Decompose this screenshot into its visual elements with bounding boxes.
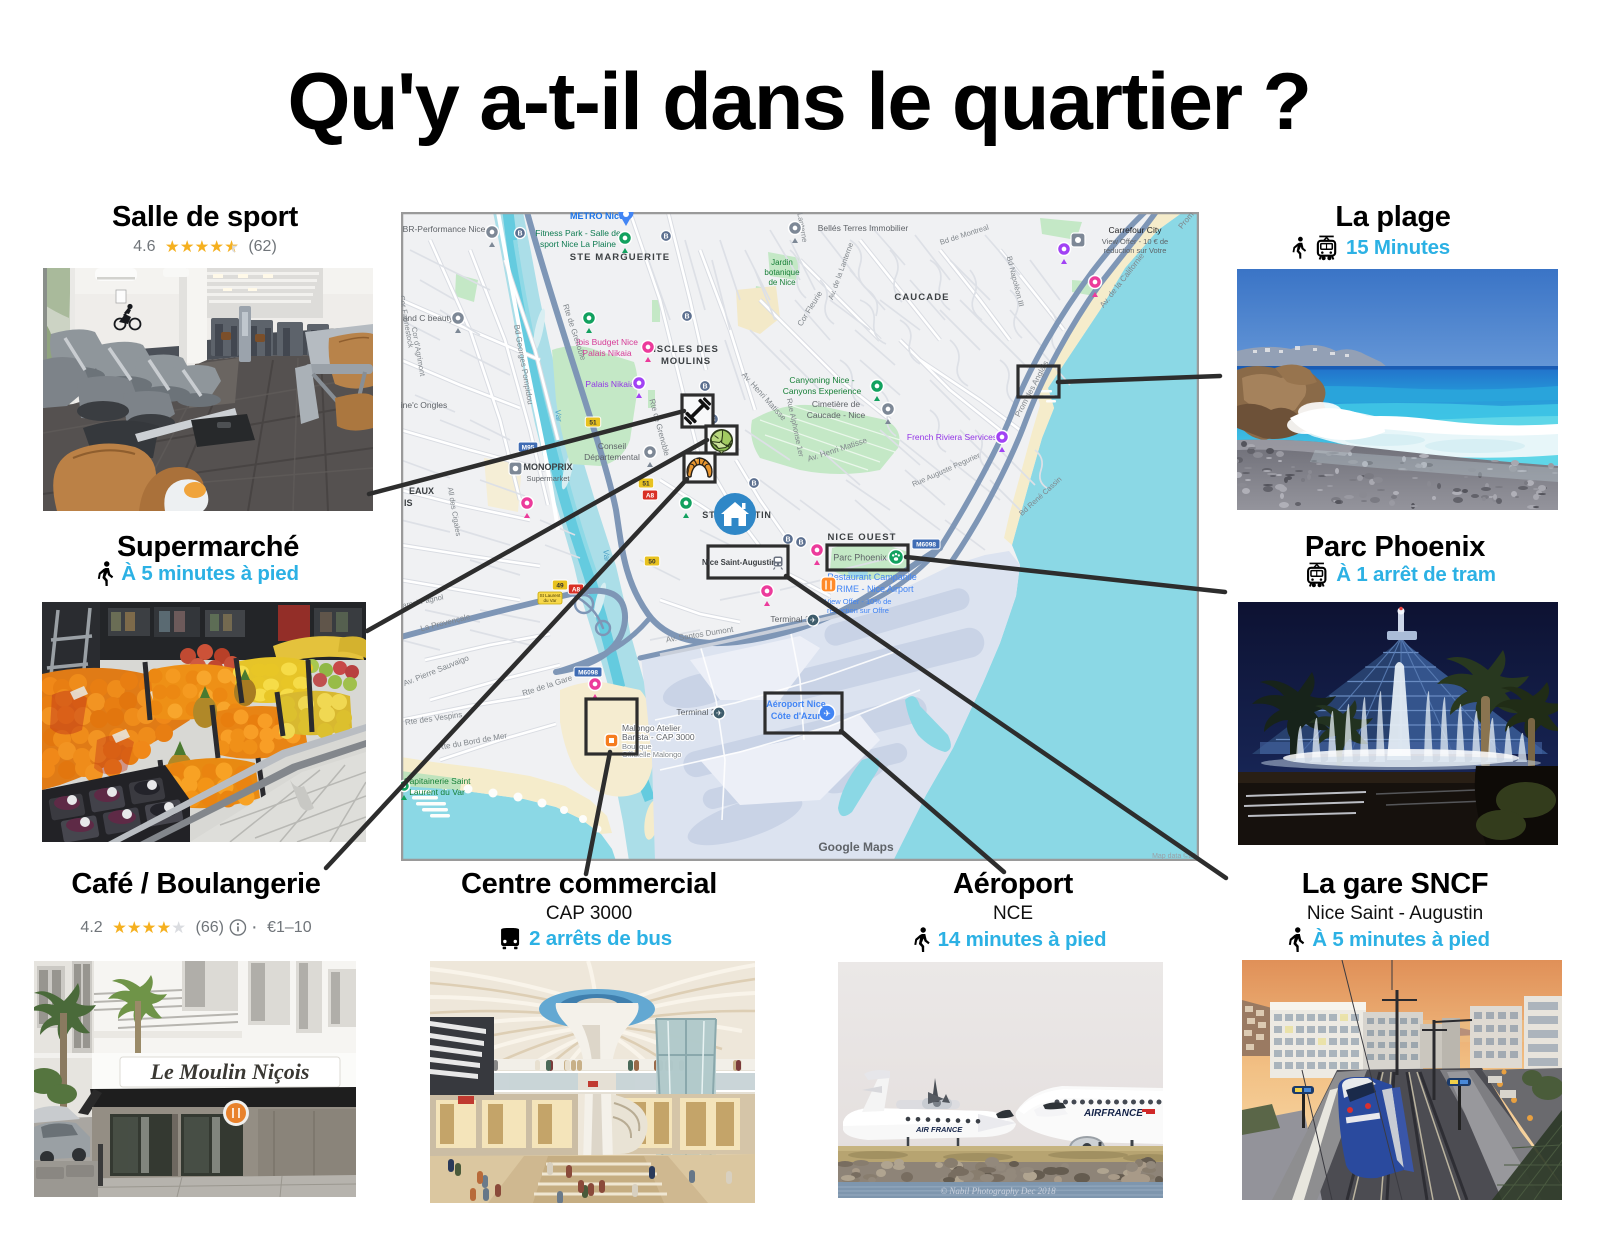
svg-text:M95: M95 <box>522 445 535 452</box>
svg-text:Carrefour City: Carrefour City <box>1109 225 1163 235</box>
svg-text:Bellés Terres Immobilier: Bellés Terres Immobilier <box>818 223 909 233</box>
svg-text:Laurent du Var: Laurent du Var <box>409 787 465 797</box>
svg-text:Fitness Park - Salle de: Fitness Park - Salle de <box>535 228 621 238</box>
svg-text:réduction sur Offre: réduction sur Offre <box>827 606 889 615</box>
svg-text:AIR FRANCE: AIR FRANCE <box>915 1125 963 1134</box>
svg-text:BR-Performance Nice: BR-Performance Nice <box>403 224 486 234</box>
svg-text:Google Maps: Google Maps <box>818 840 894 854</box>
svg-text:Capitainerie Saint: Capitainerie Saint <box>403 776 471 786</box>
svg-text:B: B <box>798 540 803 547</box>
svg-text:B: B <box>785 537 790 544</box>
svg-text:STE MARGUERITE: STE MARGUERITE <box>570 252 670 263</box>
svg-text:M6098: M6098 <box>916 542 936 549</box>
svg-text:Palais Nikaia: Palais Nikaia <box>585 379 634 389</box>
svg-text:Aéroport Nice: Aéroport Nice <box>766 699 826 709</box>
svg-text:Caucade - Nice: Caucade - Nice <box>807 410 866 420</box>
svg-text:IS: IS <box>404 498 413 508</box>
svg-text:View Offer - 10 € de: View Offer - 10 € de <box>1102 237 1168 246</box>
svg-text:✈: ✈ <box>810 618 816 625</box>
svg-text:PRIME - Nice Airport: PRIME - Nice Airport <box>830 584 914 594</box>
svg-text:B: B <box>684 314 689 321</box>
svg-text:MOULINS: MOULINS <box>661 356 711 367</box>
svg-text:✈: ✈ <box>823 709 831 719</box>
svg-text:49: 49 <box>556 583 564 590</box>
svg-text:Terminal 1: Terminal 1 <box>770 614 809 624</box>
svg-text:Restaurant Campanile: Restaurant Campanile <box>827 572 917 582</box>
svg-text:B: B <box>663 234 668 241</box>
svg-text:50: 50 <box>648 559 656 566</box>
svg-text:B: B <box>517 231 522 238</box>
svg-text:ine'c Ongles: ine'c Ongles <box>401 400 447 410</box>
svg-text:Map data ©2023: Map data ©2023 <box>1152 852 1199 860</box>
svg-text:AIRFRANCE: AIRFRANCE <box>1083 1108 1143 1119</box>
svg-text:EAUX: EAUX <box>409 486 434 496</box>
svg-text:Jardin: Jardin <box>771 258 793 267</box>
svg-text:French Riviera Services: French Riviera Services <box>907 432 997 442</box>
svg-text:botanique: botanique <box>764 268 800 277</box>
svg-text:A8: A8 <box>646 493 655 500</box>
svg-text:B: B <box>751 481 756 488</box>
svg-text:CAUCADE: CAUCADE <box>894 292 949 303</box>
svg-text:✈: ✈ <box>716 711 722 718</box>
svg-text:Côte d'Azur: Côte d'Azur <box>771 711 822 721</box>
svg-text:Canyons Experience: Canyons Experience <box>783 386 862 396</box>
svg-text:View Offer - 10% de: View Offer - 10% de <box>825 597 892 606</box>
svg-text:Nice Saint-Augustin: Nice Saint-Augustin <box>702 558 776 567</box>
svg-text:Ibis Budget Nice: Ibis Budget Nice <box>576 337 638 347</box>
svg-text:METRO Nice: METRO Nice <box>570 212 624 221</box>
svg-text:A8: A8 <box>572 587 581 594</box>
svg-text:du Var: du Var <box>544 598 557 603</box>
svg-text:Le Moulin Niçois: Le Moulin Niçois <box>150 1059 310 1084</box>
svg-text:réduction sur Votre: réduction sur Votre <box>1104 246 1167 255</box>
svg-text:Supermarket: Supermarket <box>527 474 571 483</box>
svg-text:M6098: M6098 <box>578 670 598 677</box>
svg-text:sport Nice La Plaine: sport Nice La Plaine <box>540 239 616 249</box>
svg-text:Parc Phoenix: Parc Phoenix <box>833 553 887 563</box>
svg-text:Cimetière de: Cimetière de <box>812 399 860 409</box>
svg-text:© Nabil Photography Dec 2018: © Nabil Photography Dec 2018 <box>940 1186 1056 1196</box>
svg-text:de Nice: de Nice <box>768 278 796 287</box>
svg-text:Barista - CAP 3000: Barista - CAP 3000 <box>622 732 695 742</box>
svg-text:Terminal 2: Terminal 2 <box>676 707 715 717</box>
svg-text:Canyoning Nice -: Canyoning Nice - <box>789 375 854 385</box>
svg-text:ISCLES DES: ISCLES DES <box>653 344 719 355</box>
svg-text:51: 51 <box>642 481 650 488</box>
svg-text:51: 51 <box>589 420 597 427</box>
svg-text:NICE OUEST: NICE OUEST <box>827 532 896 543</box>
svg-text:Conseil: Conseil <box>598 441 626 451</box>
svg-text:Var: Var <box>601 549 612 563</box>
svg-text:Départemental: Départemental <box>584 452 640 462</box>
svg-text:Var: Var <box>553 409 564 423</box>
svg-text:Palais Nikaia: Palais Nikaia <box>582 348 631 358</box>
svg-text:B: B <box>702 384 707 391</box>
svg-text:MONOPRIX: MONOPRIX <box>523 462 572 472</box>
